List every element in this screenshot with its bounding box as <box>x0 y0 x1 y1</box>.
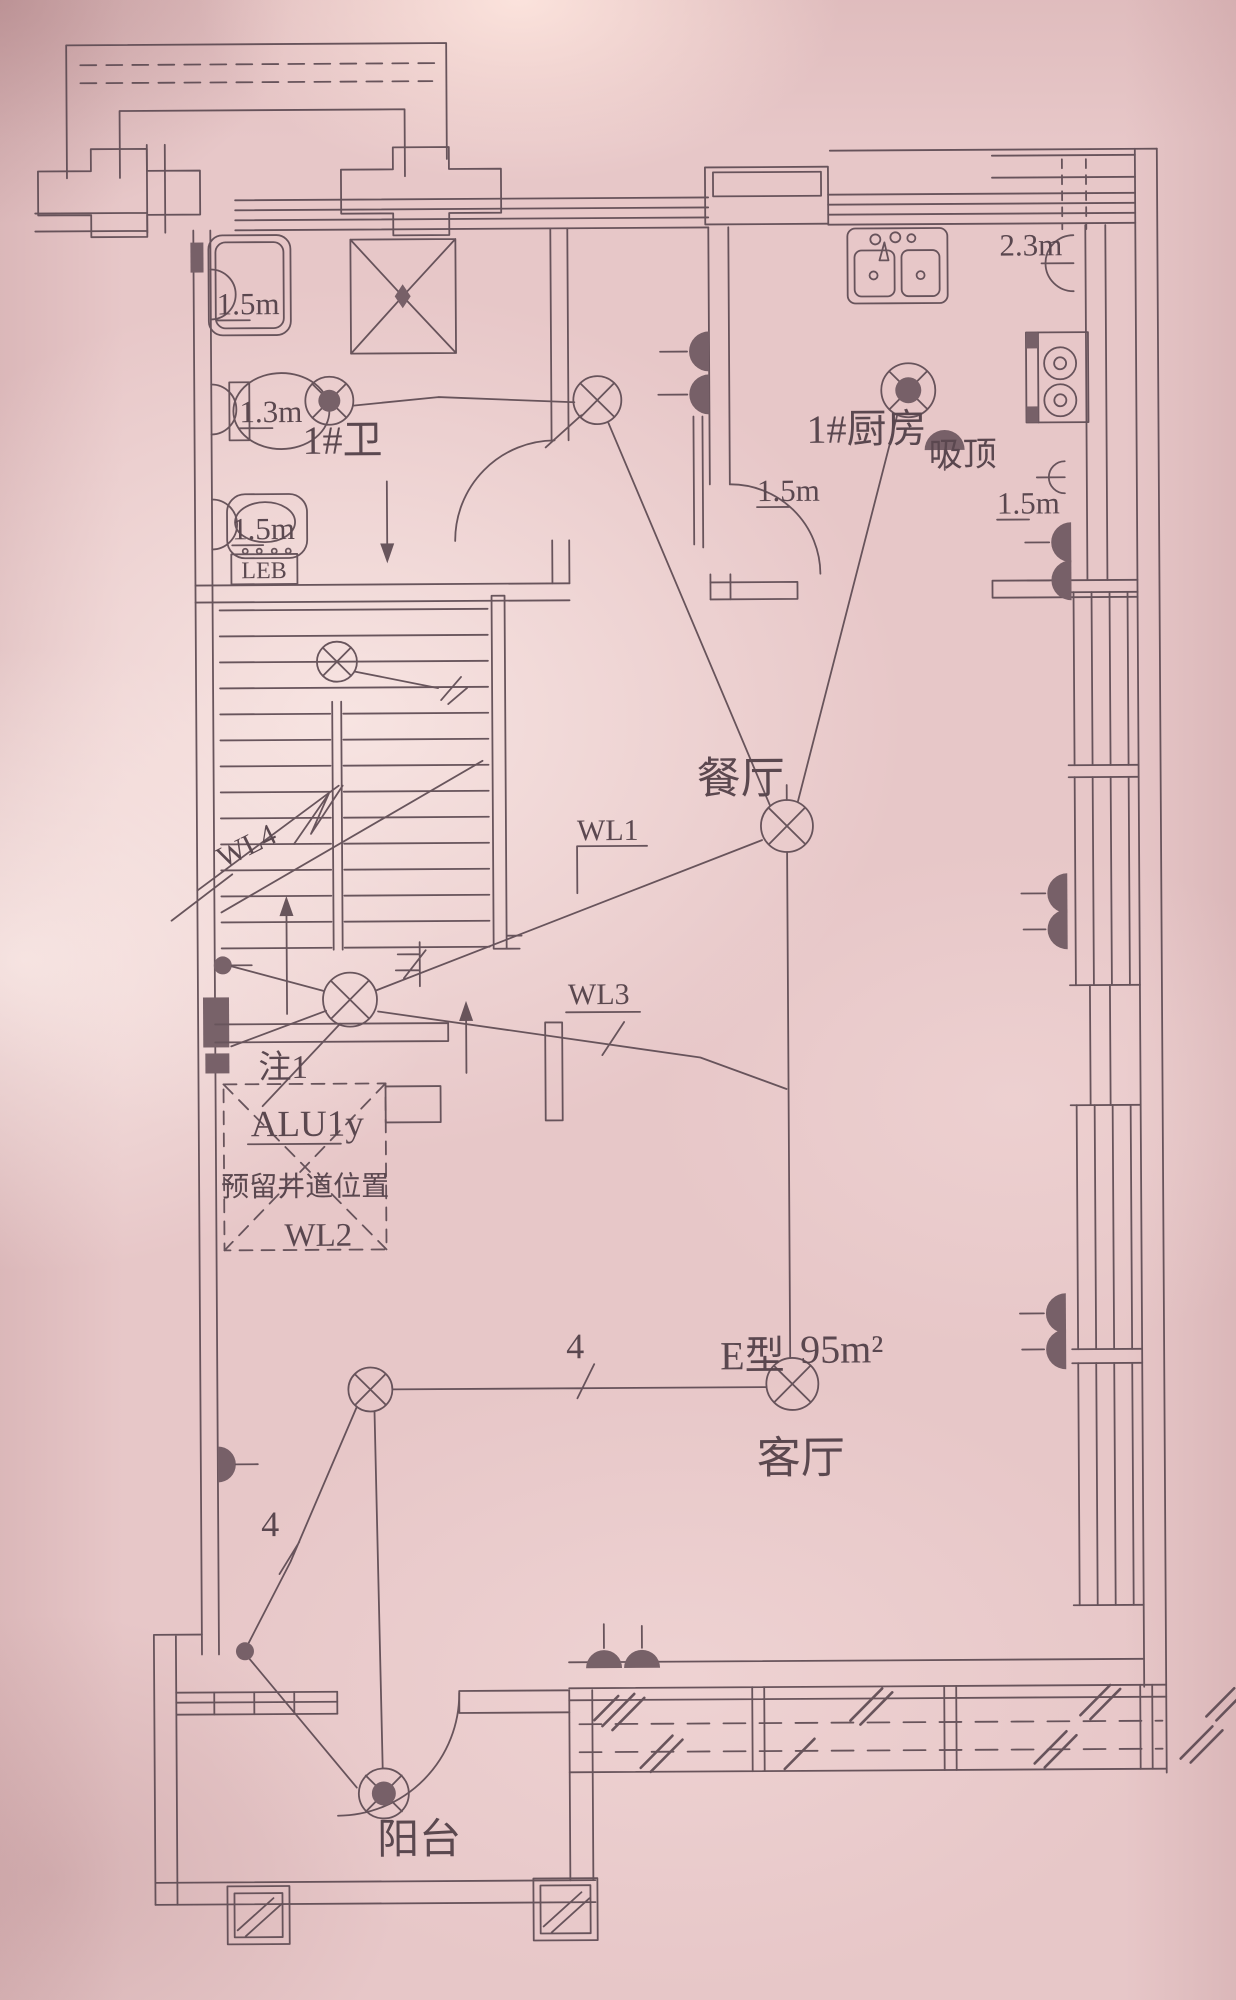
electrical-floor-plan: 1.5m 1.3m 1.5m LEB 1#卫 1#厨房 吸顶 2.3m 1.5m… <box>0 0 1236 2000</box>
east-windows <box>1015 522 1144 1606</box>
kitchen-left-dim-label: 1.5m <box>757 473 820 508</box>
labels: 1.5m 1.3m 1.5m LEB 1#卫 1#厨房 吸顶 2.3m 1.5m… <box>208 227 1072 1864</box>
distribution-box-icon <box>203 956 233 1073</box>
unit-area-label: 95m² <box>800 1326 883 1372</box>
kitchen-top-dim-label: 2.3m <box>999 227 1062 262</box>
south-window-band <box>569 1620 1236 1772</box>
wl2-label: WL2 <box>284 1218 352 1254</box>
wire-count-living-label: 4 <box>566 1326 584 1366</box>
wall-fixture <box>190 243 203 273</box>
shaft-note-label: 预留井道位置 <box>221 1170 389 1203</box>
unit-type-label: E型 <box>720 1333 785 1378</box>
ceiling-light-icon <box>359 1768 409 1818</box>
socket-icon <box>1041 522 1076 1369</box>
note1-label: 注1 <box>258 1049 308 1086</box>
socket-icon <box>586 1650 660 1668</box>
panel-circuit-label: ALU1y <box>251 1104 365 1146</box>
pendant-light-icon <box>348 1367 392 1411</box>
leb-label: LEB <box>241 558 286 584</box>
wl3-label: WL3 <box>568 978 630 1011</box>
dining-label: 餐厅 <box>697 754 785 804</box>
bathroom-label: 1#卫 <box>302 417 382 462</box>
basin-dim-label: 1.5m <box>232 511 295 546</box>
kitchen-right-dim-label: 1.5m <box>997 485 1060 520</box>
balcony-label: 阳台 <box>377 1817 461 1864</box>
exterior-walls <box>193 149 1167 1779</box>
pendant-light-icon <box>761 800 813 852</box>
kitchen-label: 1#厨房 <box>806 406 926 452</box>
socket-icon <box>218 1446 254 1660</box>
living-label: 客厅 <box>757 1434 845 1484</box>
balcony <box>154 1632 598 1945</box>
socket-icon <box>689 331 710 414</box>
shower-dim-label: 1.5m <box>217 286 280 321</box>
floorplan-photo: 1.5m 1.3m 1.5m LEB 1#卫 1#厨房 吸顶 2.3m 1.5m… <box>0 0 1236 2000</box>
wall-lamp-icon <box>1035 235 1075 493</box>
wire-count-balcony-label: 4 <box>261 1504 279 1544</box>
stairwell <box>169 481 522 1015</box>
toilet-dim-label: 1.3m <box>239 394 302 429</box>
hall-electric <box>199 376 625 1107</box>
dining-electric <box>372 414 903 1360</box>
wl1-label: WL1 <box>577 814 639 847</box>
ceiling-note-label: 吸顶 <box>929 437 997 474</box>
pendant-light-icon <box>323 972 377 1026</box>
wl4-label: WL4 <box>212 818 282 875</box>
